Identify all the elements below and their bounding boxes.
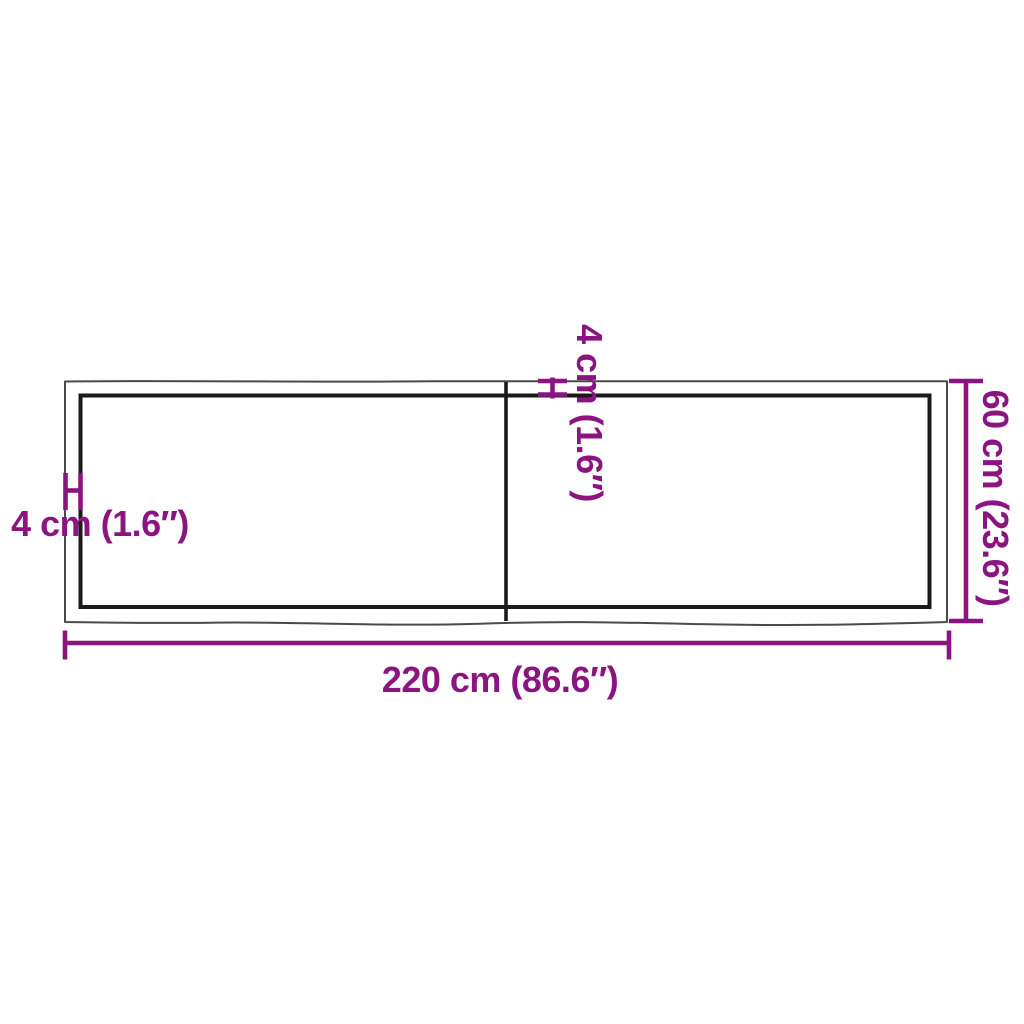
depth-dimension-label: 60 cm (23.6″) — [977, 390, 1013, 607]
width-dimension-label: 220 cm (86.6″) — [382, 662, 618, 698]
thickness-label-top: 4 cm (1.6″) — [571, 324, 607, 502]
width-dimension-line — [65, 631, 949, 660]
dimension-diagram: 220 cm (86.6″) 60 cm (23.6″) 4 cm (1.6″)… — [0, 0, 1024, 1024]
thickness-label-left: 4 cm (1.6″) — [11, 506, 189, 542]
